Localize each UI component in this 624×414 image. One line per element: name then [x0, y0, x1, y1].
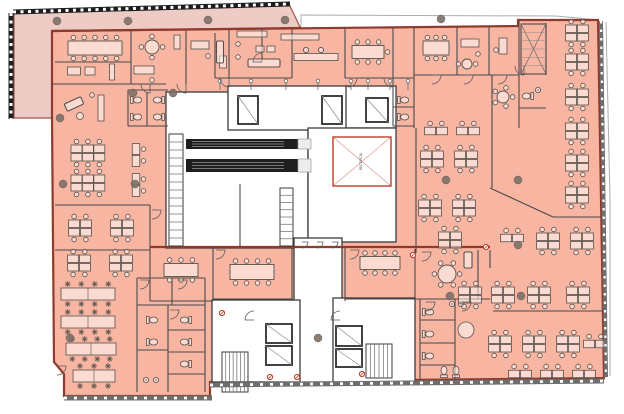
cabinet	[174, 35, 180, 49]
chair	[125, 272, 130, 277]
desk	[492, 296, 503, 304]
chair	[244, 281, 249, 286]
chair	[434, 56, 439, 61]
toilet-tank	[423, 353, 426, 360]
chair	[470, 145, 475, 150]
riser-symbol	[284, 79, 288, 83]
toilet-tank	[423, 331, 426, 338]
round-table	[438, 265, 456, 283]
desk	[94, 145, 105, 153]
desk	[523, 345, 534, 353]
furniture-rect	[110, 64, 115, 80]
escalator-landing	[298, 139, 311, 149]
chair	[363, 251, 368, 256]
chair	[74, 192, 79, 197]
chair	[83, 249, 88, 254]
desk	[582, 233, 593, 241]
desk	[577, 63, 588, 71]
desk	[520, 370, 531, 378]
chair	[434, 35, 439, 40]
desk	[512, 234, 523, 242]
stool	[303, 47, 308, 52]
furniture-rect	[267, 46, 275, 52]
chair	[570, 281, 575, 286]
chair	[83, 272, 88, 277]
structural-column	[314, 334, 322, 342]
chair	[266, 281, 271, 286]
desk	[121, 255, 132, 263]
desk	[539, 296, 550, 304]
toilet-bowl	[441, 366, 447, 374]
desk	[552, 370, 563, 378]
chair	[190, 258, 195, 263]
chair	[474, 281, 479, 286]
desk	[450, 241, 461, 249]
chair	[366, 40, 371, 45]
chair	[355, 40, 360, 45]
cabinet	[68, 67, 81, 75]
chair	[581, 117, 586, 122]
chair	[141, 189, 146, 194]
desk	[541, 370, 552, 378]
desk	[577, 132, 588, 140]
furniture-rect	[191, 41, 209, 49]
chair	[141, 147, 146, 152]
chair	[438, 283, 443, 288]
chair	[373, 271, 378, 276]
desk	[80, 220, 91, 228]
furniture-chair	[206, 54, 211, 59]
chair	[581, 48, 586, 53]
furniture-wc	[423, 309, 434, 316]
toilet-tank	[147, 317, 150, 324]
chair	[544, 364, 549, 369]
chair	[113, 249, 118, 254]
chair	[97, 192, 102, 197]
desk	[566, 187, 577, 195]
desk	[439, 232, 450, 240]
furniture-rect	[237, 31, 267, 37]
desk	[68, 264, 79, 272]
chair	[383, 251, 388, 256]
desk	[577, 196, 588, 204]
furniture-wc	[453, 366, 460, 377]
desk	[584, 340, 595, 348]
desk	[566, 34, 577, 42]
riser-symbol	[388, 79, 392, 83]
desk	[566, 89, 577, 97]
stool	[318, 47, 323, 52]
chair	[552, 250, 557, 255]
furniture-wc	[180, 339, 191, 346]
desk	[122, 229, 133, 237]
chair	[581, 42, 586, 47]
chair	[376, 60, 381, 65]
chair	[494, 48, 499, 53]
chair	[473, 62, 478, 67]
chair	[93, 35, 98, 40]
furniture-sink	[153, 377, 158, 382]
chair	[474, 304, 479, 309]
toilet-tank	[162, 97, 165, 104]
furniture-stool	[318, 47, 323, 52]
chair	[569, 42, 574, 47]
chair	[113, 272, 118, 277]
chair	[458, 168, 463, 173]
chair	[373, 251, 378, 256]
structural-column	[514, 176, 522, 184]
cabinet	[85, 67, 95, 75]
chair	[581, 181, 586, 186]
desk	[582, 242, 593, 250]
chair	[355, 60, 360, 65]
furniture-wc	[398, 114, 409, 121]
toilet-bowl	[401, 114, 409, 120]
chair	[468, 194, 473, 199]
furniture-rect	[294, 54, 338, 61]
chair	[454, 249, 459, 254]
round-fixture	[458, 322, 474, 338]
void-room: RECEPCJA	[333, 137, 391, 186]
toilet-bowl	[426, 353, 434, 359]
structural-column	[56, 114, 64, 122]
toilet-bowl	[453, 366, 459, 374]
chair	[581, 172, 586, 177]
desk	[577, 187, 588, 195]
chair	[84, 214, 89, 219]
chair	[581, 149, 586, 154]
meeting-table	[68, 41, 122, 55]
desk	[419, 209, 430, 217]
chair	[255, 259, 260, 264]
chair	[72, 214, 77, 219]
furniture-sink	[449, 301, 454, 306]
desk	[566, 25, 577, 33]
chair	[206, 54, 211, 59]
chair	[599, 334, 604, 339]
toilet-tank	[531, 93, 534, 100]
desk	[577, 123, 588, 131]
desk	[548, 242, 559, 250]
chair	[436, 145, 441, 150]
meeting-table	[352, 46, 384, 59]
desk	[436, 127, 447, 135]
desk	[528, 296, 539, 304]
desk	[500, 345, 511, 353]
chair	[424, 145, 429, 150]
chair	[422, 217, 427, 222]
furniture-rect	[174, 35, 180, 49]
toilet-bowl	[180, 317, 188, 323]
chair	[582, 304, 587, 309]
cabinet	[237, 31, 267, 37]
chair	[569, 140, 574, 145]
chair	[179, 258, 184, 263]
furniture-rect	[256, 46, 264, 52]
toilet-tank	[398, 97, 401, 104]
desk	[509, 370, 520, 378]
furniture-wc	[180, 361, 191, 368]
cabinet	[256, 46, 264, 52]
chair	[457, 272, 462, 277]
desk	[577, 34, 588, 42]
desk	[453, 209, 464, 217]
desk	[421, 160, 432, 168]
chair	[114, 35, 119, 40]
chair	[167, 258, 172, 263]
desk	[71, 175, 82, 183]
chair	[97, 139, 102, 144]
chair	[150, 78, 155, 83]
cabinet	[191, 41, 209, 49]
sink-drain	[451, 303, 452, 304]
chair	[425, 56, 430, 61]
chair	[139, 45, 144, 50]
cabinet	[281, 34, 319, 40]
chair	[495, 281, 500, 286]
chair	[74, 169, 79, 174]
toilet-tank	[441, 375, 448, 378]
desk	[567, 287, 578, 295]
desk	[455, 160, 466, 168]
chair	[493, 100, 498, 105]
desk	[421, 151, 432, 159]
chair	[233, 259, 238, 264]
chair	[97, 169, 102, 174]
round-fixture	[77, 113, 84, 120]
chair	[516, 228, 521, 233]
chair	[531, 304, 536, 309]
meeting-table	[360, 257, 400, 270]
chair	[434, 217, 439, 222]
chair	[71, 272, 76, 277]
desk	[566, 98, 577, 106]
riser-symbol	[316, 79, 320, 83]
chair	[581, 140, 586, 145]
desk	[568, 345, 579, 353]
desk	[110, 264, 121, 272]
desk	[489, 345, 500, 353]
desk	[111, 220, 122, 228]
desk	[503, 296, 514, 304]
riser-symbol	[406, 79, 410, 83]
desk	[430, 209, 441, 217]
chair	[543, 304, 548, 309]
chair	[86, 162, 91, 167]
chair	[504, 330, 509, 335]
desk	[528, 287, 539, 295]
chair	[581, 19, 586, 24]
chair	[560, 330, 565, 335]
chair	[569, 83, 574, 88]
furniture-rect	[85, 67, 95, 75]
toilet-bowl	[150, 317, 158, 323]
sink-drain	[537, 89, 538, 90]
chair	[236, 42, 241, 47]
cabinet	[110, 64, 115, 80]
chair	[434, 194, 439, 199]
desk	[557, 345, 568, 353]
chair	[540, 250, 545, 255]
desk	[470, 296, 481, 304]
round-table	[462, 59, 472, 69]
chair	[114, 237, 119, 242]
desk	[578, 287, 589, 295]
escalator-landing	[298, 159, 311, 172]
toilet-tank	[131, 114, 134, 121]
chair	[572, 330, 577, 335]
chair	[526, 330, 531, 335]
chair	[507, 304, 512, 309]
chair	[560, 353, 565, 358]
chair	[71, 35, 76, 40]
void-room-label: RECEPCJA	[359, 152, 363, 170]
desk	[132, 155, 140, 166]
desk	[82, 175, 93, 183]
desk	[121, 264, 132, 272]
structural-column	[437, 15, 445, 23]
toilet-bowl	[150, 339, 158, 345]
toilet-bowl	[426, 331, 434, 337]
desk	[566, 132, 577, 140]
sofa	[464, 252, 472, 268]
furniture-wc	[131, 114, 142, 121]
desk	[69, 220, 80, 228]
furniture-sink	[535, 87, 540, 92]
desk	[577, 89, 588, 97]
chair	[150, 55, 155, 60]
chair	[581, 83, 586, 88]
chair	[462, 304, 467, 309]
chair	[385, 50, 390, 55]
desk	[432, 151, 443, 159]
desk	[571, 242, 582, 250]
sink-drain	[460, 303, 461, 304]
furniture-chair	[494, 48, 499, 53]
desk	[470, 287, 481, 295]
chair	[190, 278, 195, 283]
chair	[492, 330, 497, 335]
chair	[472, 121, 477, 126]
chair	[125, 249, 130, 254]
round-table	[497, 91, 509, 103]
desk	[68, 255, 79, 263]
chair	[569, 117, 574, 122]
chair	[569, 48, 574, 53]
desk	[464, 200, 475, 208]
furniture-wc	[441, 366, 448, 377]
desk	[492, 287, 503, 295]
chair	[141, 177, 146, 182]
desk	[71, 184, 82, 192]
chair	[74, 162, 79, 167]
desk	[453, 200, 464, 208]
furniture-chair	[90, 93, 95, 98]
cabinet	[267, 46, 275, 52]
furniture-mtg	[423, 35, 449, 61]
furniture-rect	[499, 38, 507, 54]
furniture-wc	[423, 353, 434, 360]
floor-plan-drawing: RECEPCJA	[0, 0, 624, 414]
desk	[534, 336, 545, 344]
chair	[71, 249, 76, 254]
furniture-bench	[73, 363, 115, 389]
cabinet	[98, 95, 104, 121]
desk	[566, 54, 577, 62]
desk	[122, 220, 133, 228]
chair	[438, 261, 443, 266]
chair	[581, 204, 586, 209]
chair	[456, 194, 461, 199]
toilet-tank	[131, 97, 134, 104]
structural-column	[442, 176, 450, 184]
chair	[72, 237, 77, 242]
chair	[255, 281, 260, 286]
furniture-wc	[147, 339, 158, 346]
cabinet	[294, 54, 338, 61]
desk	[94, 184, 105, 192]
toilet-bowl	[180, 361, 188, 367]
chair	[556, 364, 561, 369]
structural-column	[169, 89, 177, 97]
desk	[584, 370, 595, 378]
desk	[459, 287, 470, 295]
desk	[464, 209, 475, 217]
chair	[71, 56, 76, 61]
chair	[74, 139, 79, 144]
chair	[569, 172, 574, 177]
chair	[376, 40, 381, 45]
chair	[150, 34, 155, 39]
toilet-tank	[398, 114, 401, 121]
chair	[425, 35, 430, 40]
chair	[126, 237, 131, 242]
desk	[132, 144, 140, 155]
desk	[82, 154, 93, 162]
chair	[581, 71, 586, 76]
toilet-tank	[189, 339, 192, 346]
desk	[571, 233, 582, 241]
desk	[578, 296, 589, 304]
desk	[503, 287, 514, 295]
desk	[566, 196, 577, 204]
riser-symbol	[249, 79, 253, 83]
chair	[141, 159, 146, 164]
chair	[160, 45, 165, 50]
chair	[266, 259, 271, 264]
chair	[570, 304, 575, 309]
chair	[504, 353, 509, 358]
chair	[540, 227, 545, 232]
chair	[366, 60, 371, 65]
round-table	[145, 40, 159, 54]
chair	[114, 214, 119, 219]
furniture-wc	[153, 114, 164, 121]
furniture-wc	[398, 97, 409, 104]
structural-column	[204, 16, 212, 24]
chair	[581, 106, 586, 111]
toilet-bowl	[134, 114, 142, 120]
chair	[582, 281, 587, 286]
chair	[114, 56, 119, 61]
chair	[507, 281, 512, 286]
chair	[451, 283, 456, 288]
chair	[504, 86, 509, 91]
chair	[363, 271, 368, 276]
desk	[577, 155, 588, 163]
furniture-rect	[281, 34, 319, 40]
structural-column	[514, 241, 522, 249]
